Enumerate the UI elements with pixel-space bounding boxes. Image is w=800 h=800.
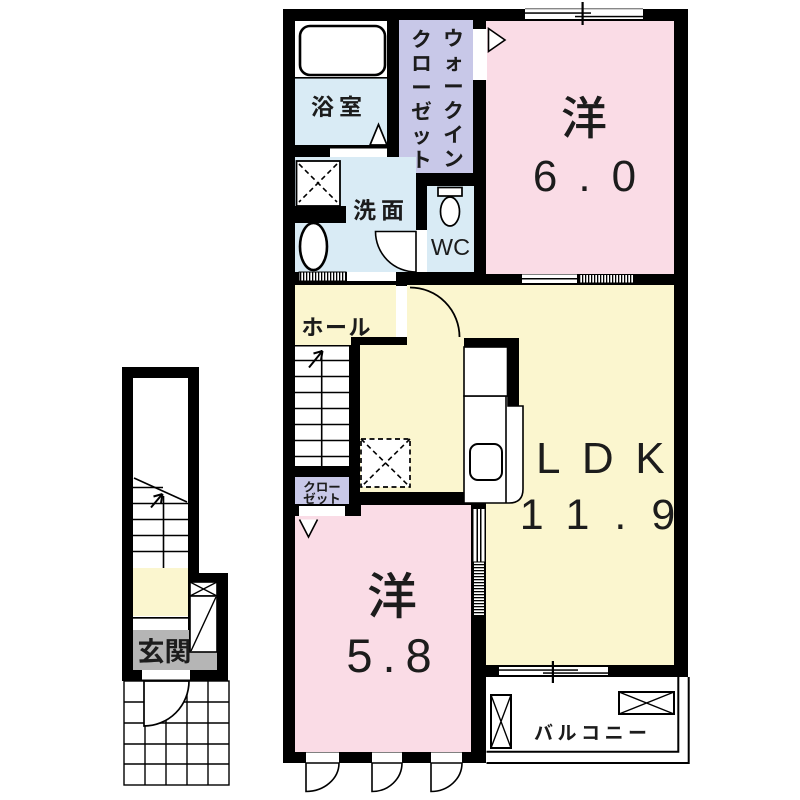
svg-text:5.8: 5.8 (346, 629, 441, 682)
svg-text:LDK: LDK (536, 434, 686, 483)
svg-text:WC: WC (431, 234, 470, 260)
svg-text:11.9: 11.9 (520, 491, 701, 539)
svg-text:6.0: 6.0 (533, 152, 657, 201)
